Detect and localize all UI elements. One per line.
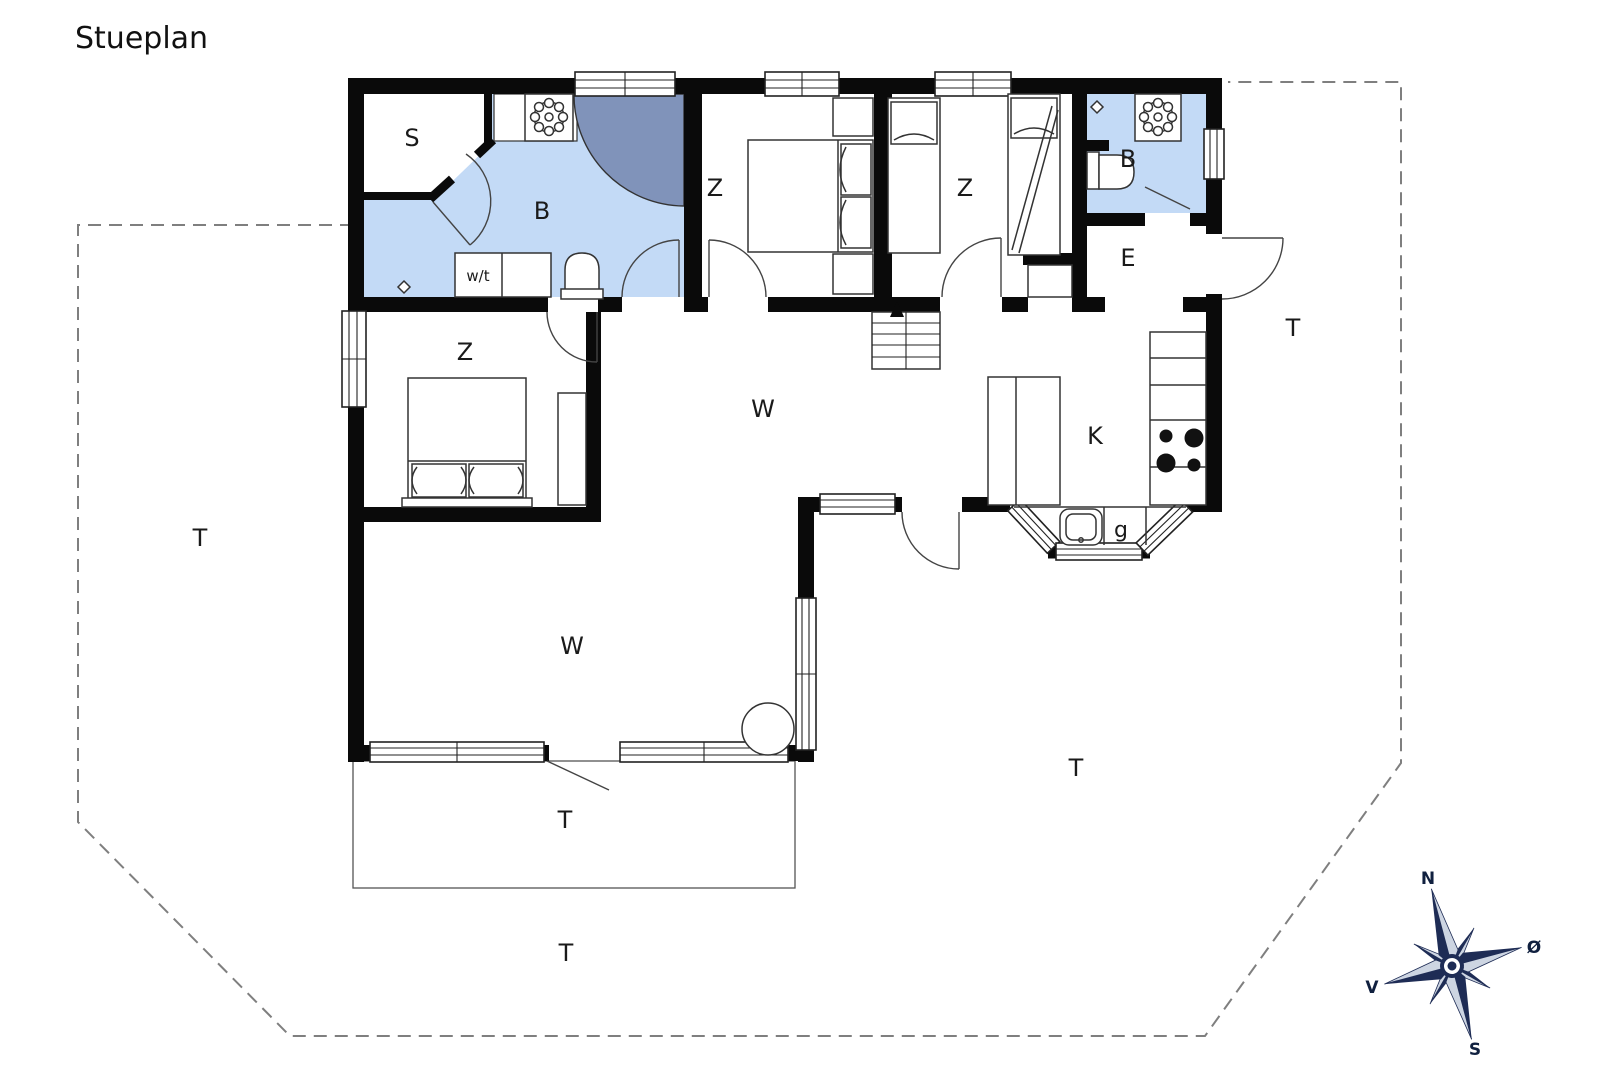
wall-bath2-entry — [1087, 213, 1145, 226]
floor-plan-page: Stueplan — [0, 0, 1600, 1067]
door-living-lower — [902, 512, 959, 569]
door-entrance-exterior — [1222, 238, 1283, 299]
nightstand — [833, 98, 873, 136]
room-label-kitchen: K — [1087, 422, 1104, 450]
room-label-sauna: S — [404, 124, 419, 152]
bunk-bed — [1008, 94, 1060, 255]
round-table — [742, 703, 794, 755]
terrace-label-right-top: T — [1285, 314, 1301, 342]
toilet-main-icon — [561, 253, 603, 299]
closet — [1028, 265, 1072, 297]
wardrobe — [558, 393, 586, 505]
compass-label-north: N — [1421, 869, 1435, 889]
sink-main-icon — [525, 94, 573, 141]
terrace-label-deck: T — [557, 806, 573, 834]
wall-bed3-bottom — [348, 507, 601, 522]
compass-rose: N Ø S V — [1364, 869, 1542, 1060]
room-label-bedroom-3: Z — [457, 338, 473, 366]
sink-bath2-icon — [1135, 94, 1181, 141]
double-bed-3 — [402, 378, 532, 507]
bay-window-right — [1136, 500, 1192, 555]
window-top-3 — [935, 72, 1011, 96]
door-bedroom-2 — [942, 238, 1001, 297]
floor-plan-drawing: Stueplan — [0, 0, 1600, 1067]
room-label-bedroom-1: Z — [707, 174, 723, 202]
room-label-entrance: E — [1120, 244, 1135, 272]
wall-left — [348, 78, 364, 762]
label-washer-dryer: w/t — [466, 267, 489, 285]
room-label-bathroom-main: B — [534, 197, 550, 225]
window-left-bed3 — [342, 311, 366, 407]
room-label-pantry: g — [1114, 518, 1128, 543]
wall-right-3 — [1206, 294, 1222, 512]
terrace-deck — [353, 761, 795, 888]
wall-right-1 — [1206, 78, 1222, 136]
sauna-wall-bottom — [364, 192, 434, 200]
room-label-living-lower: W — [560, 632, 584, 660]
wall-bed3-right — [586, 312, 601, 507]
kitchen-counter — [1150, 332, 1206, 505]
window-bottom-1 — [370, 742, 544, 762]
window-top-1 — [575, 72, 675, 96]
compass-label-west: V — [1365, 978, 1379, 998]
terrace-label-left: T — [192, 524, 208, 552]
compass-label-south: S — [1469, 1040, 1481, 1060]
compass-label-east: Ø — [1527, 938, 1541, 958]
terrace-label-bottom: T — [558, 939, 574, 967]
bath2-wall-stub — [1087, 140, 1109, 151]
room-label-bathroom-2: B — [1120, 145, 1136, 173]
double-bed-1 — [748, 98, 873, 294]
wall-bed2-entry — [1072, 94, 1087, 312]
wall-bath-bed1 — [684, 94, 702, 304]
kitchen-sink-icon — [1060, 509, 1102, 545]
page-title: Stueplan — [75, 21, 208, 56]
window-right-living — [796, 598, 816, 750]
window-top-2 — [765, 72, 839, 96]
nightstand — [833, 254, 873, 294]
sauna-wall-right — [484, 94, 492, 145]
kitchen-island — [988, 377, 1060, 505]
wall-right-2 — [1206, 172, 1222, 234]
single-bed — [888, 98, 940, 253]
room-label-bedroom-2: Z — [957, 174, 973, 202]
window-mid-wall — [820, 494, 895, 514]
room-label-living-upper: W — [751, 395, 775, 423]
terrace-label-right-bottom: T — [1068, 754, 1084, 782]
window-right-bath2 — [1204, 129, 1224, 179]
